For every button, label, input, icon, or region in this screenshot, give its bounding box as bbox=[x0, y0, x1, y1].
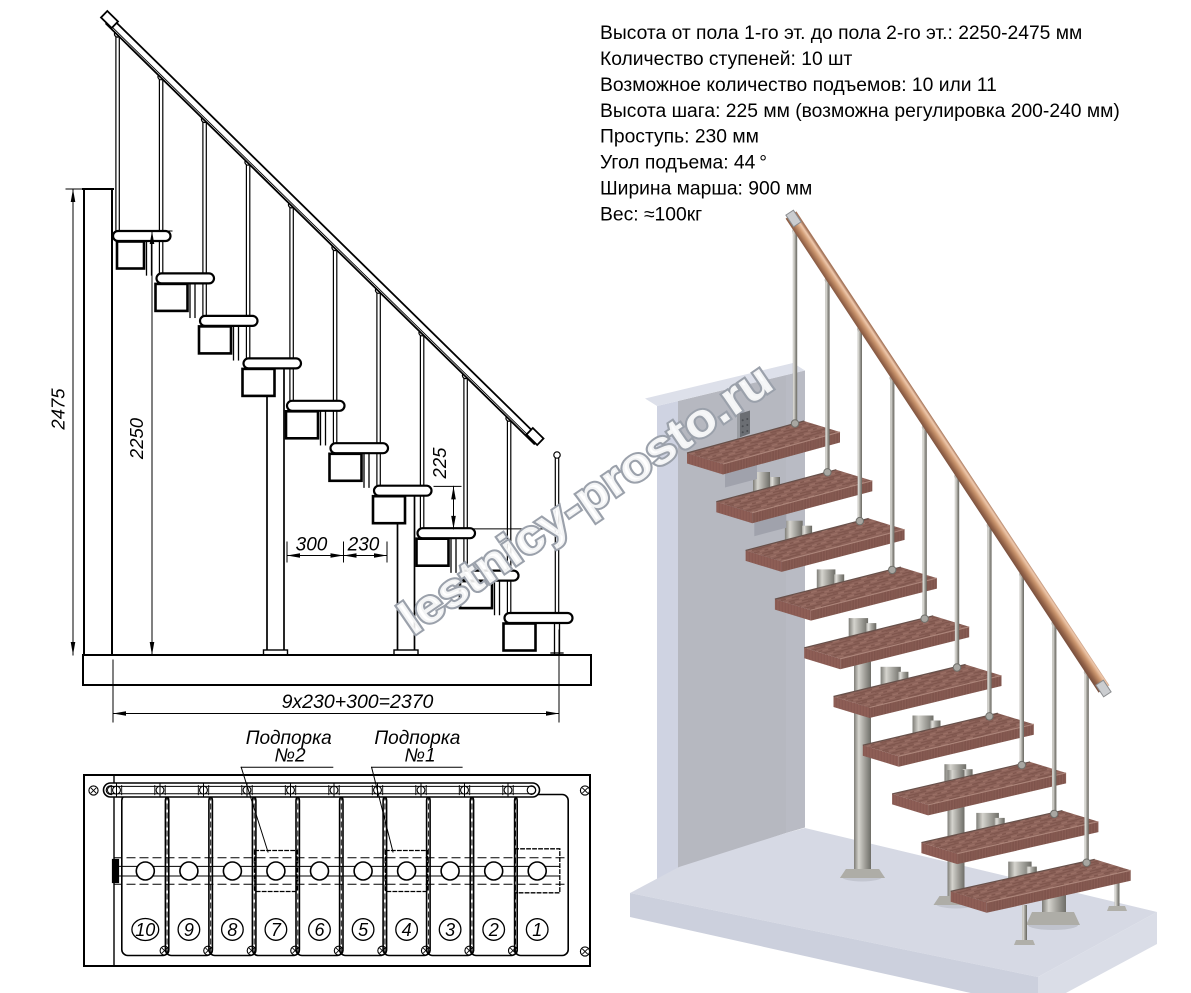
svg-text:2250: 2250 bbox=[126, 417, 147, 460]
svg-text:230: 230 bbox=[347, 535, 380, 556]
svg-text:9x230+300=2370: 9x230+300=2370 bbox=[282, 691, 434, 713]
svg-text:8: 8 bbox=[227, 920, 237, 940]
svg-text:Количество ступеней: 10 шт: Количество ступеней: 10 шт bbox=[600, 49, 853, 70]
svg-text:2: 2 bbox=[488, 920, 499, 940]
svg-text:4: 4 bbox=[402, 920, 412, 940]
svg-text:9: 9 bbox=[184, 920, 194, 940]
svg-text:№1: №1 bbox=[404, 746, 435, 767]
svg-text:10: 10 bbox=[135, 920, 155, 940]
svg-text:Ширина марша: 900 мм: Ширина марша: 900 мм bbox=[600, 179, 812, 200]
svg-text:№2: №2 bbox=[274, 746, 306, 767]
svg-text:Угол подъема: 44 °: Угол подъема: 44 ° bbox=[600, 153, 767, 174]
svg-text:225: 225 bbox=[429, 447, 450, 480]
svg-text:5: 5 bbox=[358, 920, 369, 940]
svg-text:7: 7 bbox=[271, 920, 282, 940]
svg-text:Высота от пола 1-го эт. до пол: Высота от пола 1-го эт. до пола 2-го эт.… bbox=[600, 23, 1082, 44]
svg-text:Возможное количество подъемов:: Возможное количество подъемов: 10 или 11 bbox=[600, 75, 997, 96]
svg-text:6: 6 bbox=[314, 920, 325, 940]
svg-text:Вес: ≈100кг: Вес: ≈100кг bbox=[600, 204, 702, 225]
svg-text:300: 300 bbox=[296, 535, 328, 556]
svg-text:2475: 2475 bbox=[48, 388, 69, 431]
svg-text:1: 1 bbox=[532, 920, 542, 940]
svg-text:Высота шага: 225 мм (возможна: Высота шага: 225 мм (возможна регулировк… bbox=[600, 101, 1120, 122]
svg-text:3: 3 bbox=[445, 920, 455, 940]
svg-text:Проступь: 230 мм: Проступь: 230 мм bbox=[600, 127, 759, 148]
